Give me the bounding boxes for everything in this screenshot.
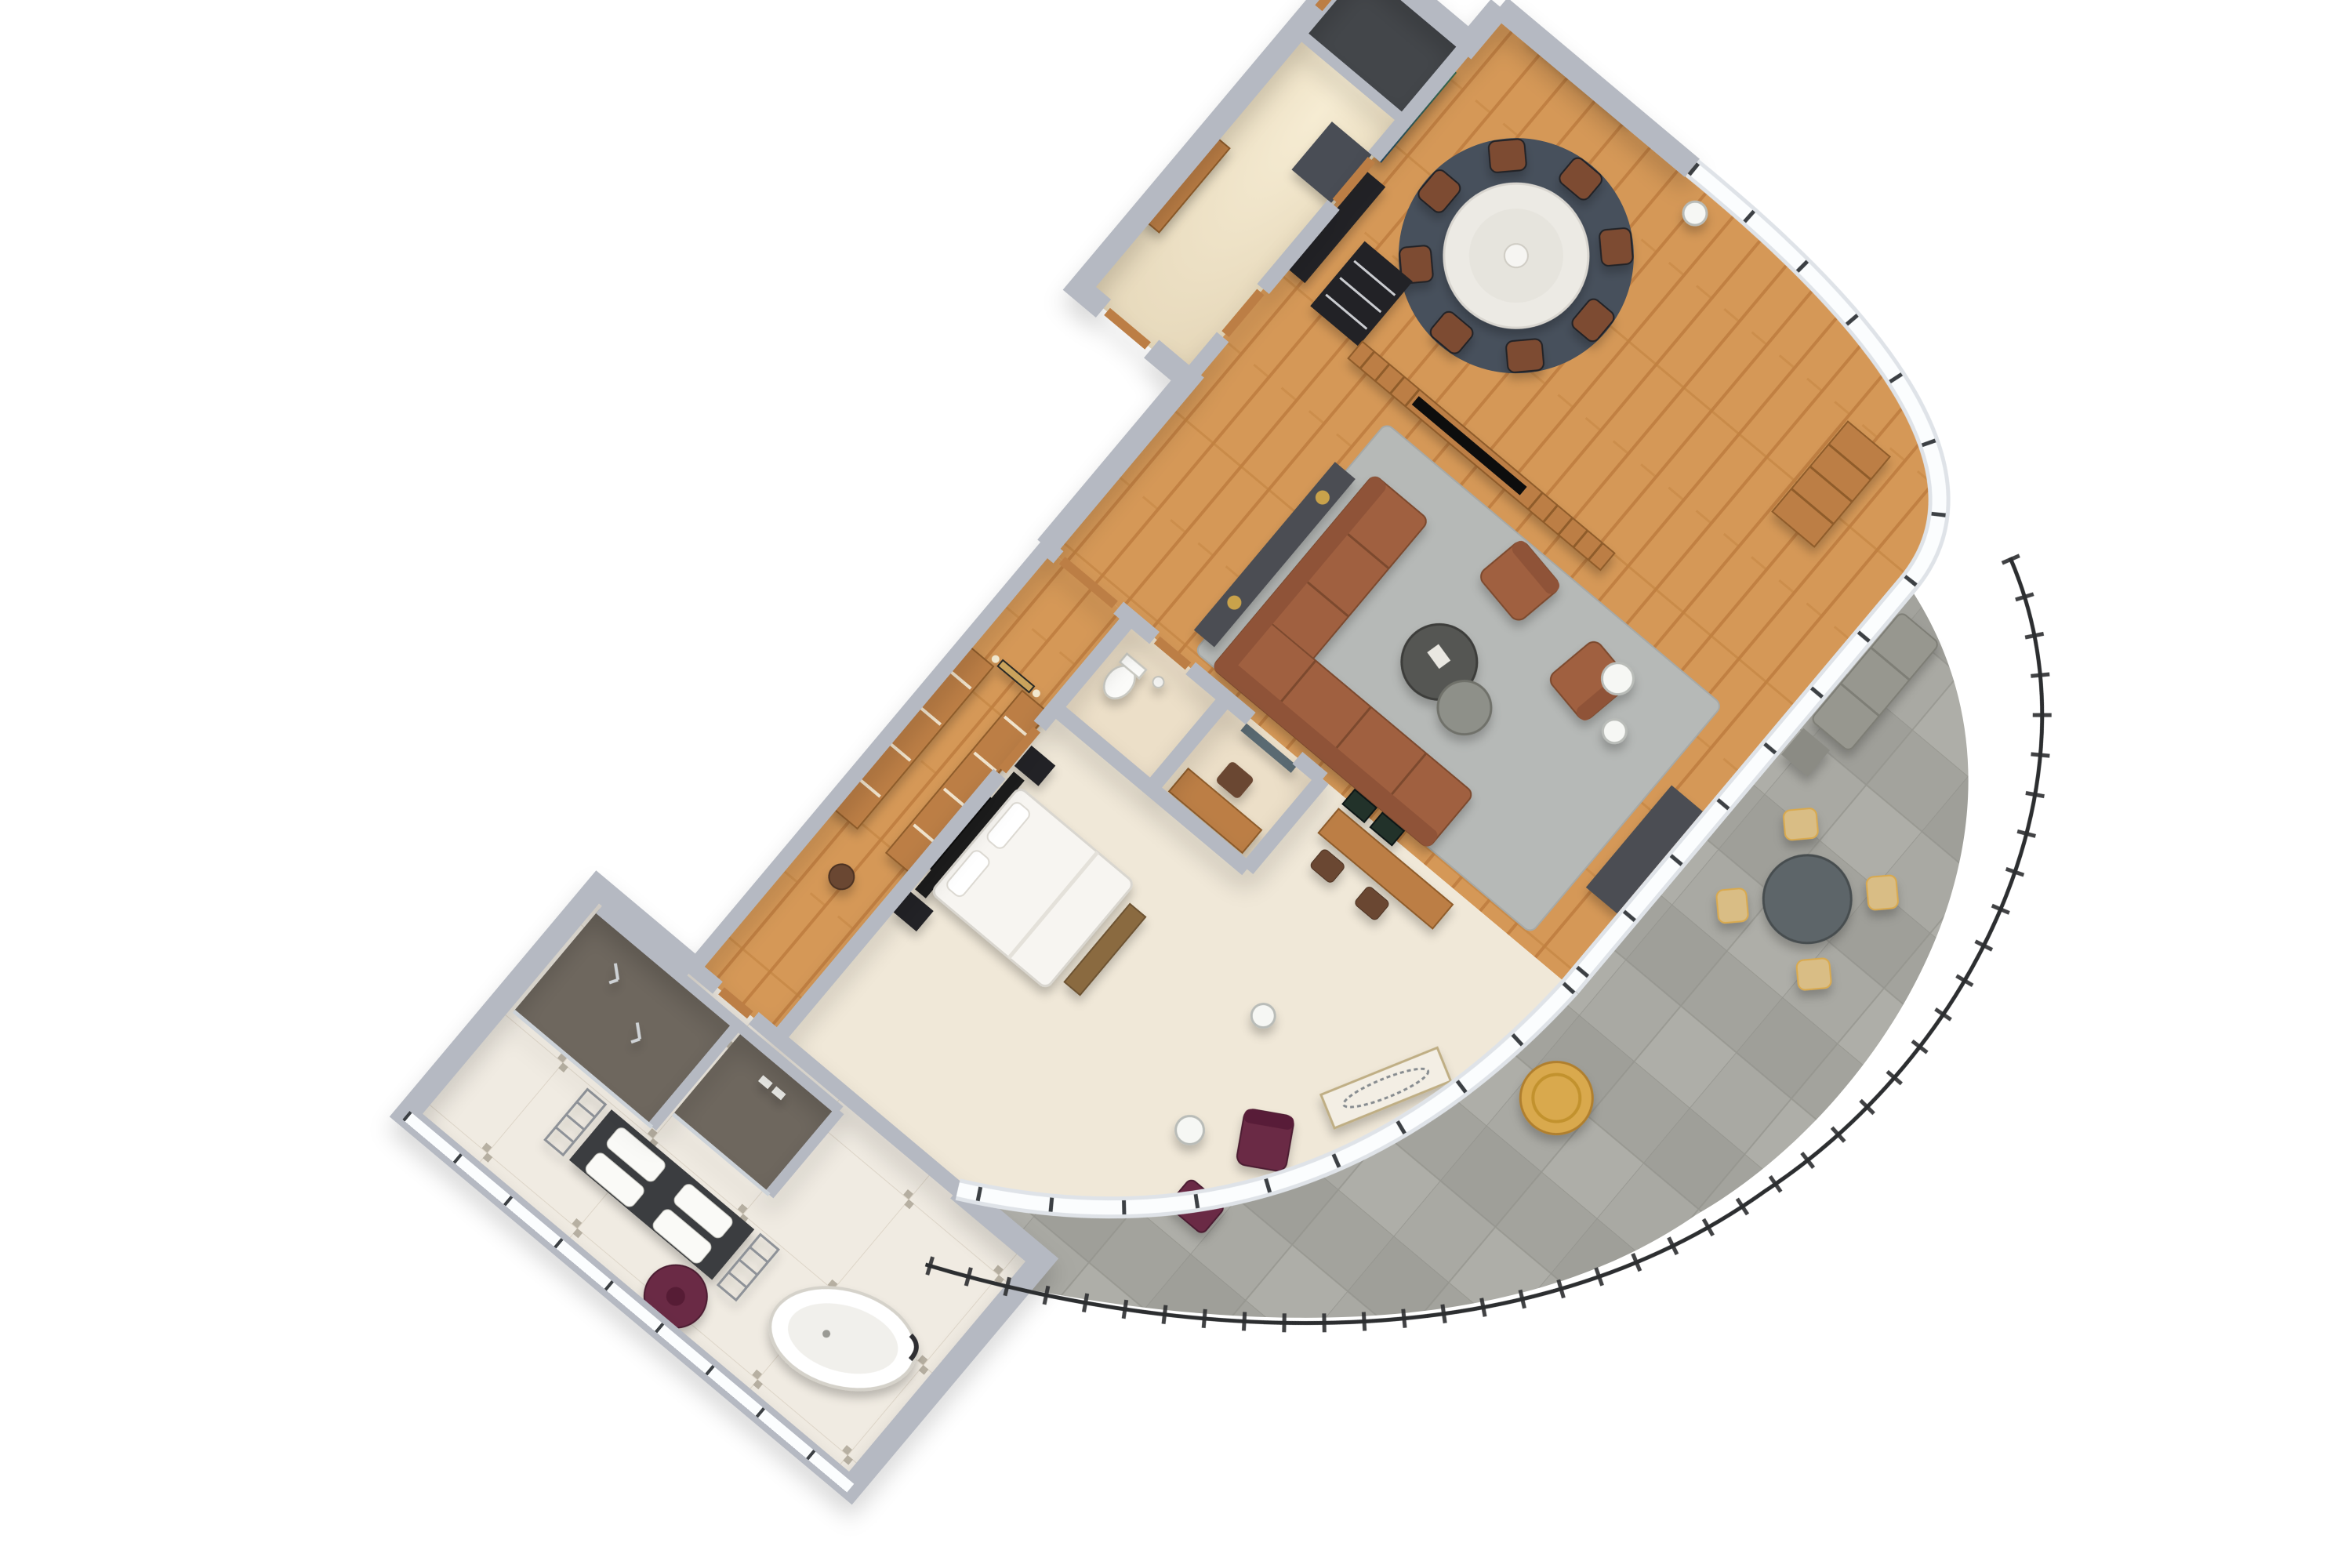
chair — [1866, 875, 1899, 910]
chair — [1716, 888, 1749, 924]
wingback-chair — [1236, 1108, 1295, 1172]
suite-plan — [394, 0, 2264, 1568]
floorplan-render: Top-down 3D cutaway floor plan of a curv… — [0, 0, 2352, 1568]
chair — [1505, 339, 1544, 373]
chair — [1599, 227, 1633, 266]
chair — [1488, 139, 1526, 173]
chair — [1783, 808, 1818, 840]
chair — [1796, 958, 1831, 991]
